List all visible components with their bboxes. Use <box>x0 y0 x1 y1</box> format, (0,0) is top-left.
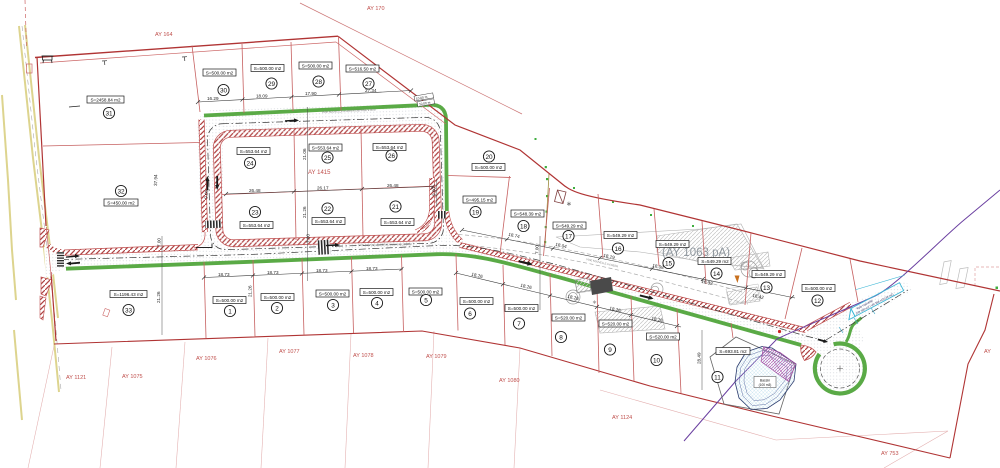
svg-text:29: 29 <box>268 81 276 88</box>
svg-text:30: 30 <box>220 87 228 94</box>
svg-text:Bassin: Bassin <box>760 379 770 383</box>
svg-text:S=553.64 m2: S=553.64 m2 <box>376 145 404 150</box>
svg-text:15: 15 <box>665 260 673 267</box>
svg-text:18.73: 18.73 <box>316 268 328 273</box>
svg-text:AY 170: AY 170 <box>367 6 385 12</box>
svg-text:S=500.00 m2: S=500.00 m2 <box>302 64 330 69</box>
svg-text:26.48: 26.48 <box>249 188 261 193</box>
svg-text:S=553.64 m2: S=553.64 m2 <box>315 219 343 224</box>
svg-text:9.00: 9.00 <box>432 187 437 196</box>
svg-text:S=500.00 m2: S=500.00 m2 <box>475 165 503 170</box>
svg-text:7.00: 7.00 <box>157 238 162 247</box>
svg-text:S=500.00 m2: S=500.00 m2 <box>254 66 282 71</box>
svg-text:10: 10 <box>653 357 661 364</box>
svg-text:18: 18 <box>520 223 528 230</box>
svg-text:18.73: 18.73 <box>267 270 279 275</box>
svg-text:S=549.29 m2: S=549.29 m2 <box>755 272 783 277</box>
svg-text:17: 17 <box>565 233 573 240</box>
svg-text:S=516.50 m2: S=516.50 m2 <box>349 67 377 72</box>
svg-text:AY 1077: AY 1077 <box>279 349 300 355</box>
svg-text:AY 1121: AY 1121 <box>66 375 86 381</box>
svg-text:S=553.64 m2: S=553.64 m2 <box>240 149 268 154</box>
svg-text:S=500.00 m2: S=500.00 m2 <box>412 290 440 295</box>
svg-text:21.26: 21.26 <box>156 291 161 303</box>
svg-text:28: 28 <box>315 79 323 86</box>
svg-text:S=495.15 m2: S=495.15 m2 <box>466 198 494 203</box>
svg-text:S=1196.43 m2: S=1196.43 m2 <box>114 292 144 297</box>
svg-text:AY 1415: AY 1415 <box>308 170 331 176</box>
svg-text:6: 6 <box>468 311 472 318</box>
svg-text:S=520.00 m2: S=520.00 m2 <box>555 316 583 321</box>
svg-text:S=553.64 m2: S=553.64 m2 <box>312 146 340 151</box>
svg-text:27: 27 <box>365 81 373 88</box>
svg-text:S=500.00 m2: S=500.00 m2 <box>463 299 491 304</box>
svg-text:9.00: 9.00 <box>204 189 210 199</box>
svg-text:S=2458.84 m2: S=2458.84 m2 <box>90 98 120 103</box>
svg-text:S=549.29 m2: S=549.29 m2 <box>556 224 584 229</box>
svg-text:33: 33 <box>125 307 133 314</box>
svg-text:18.73: 18.73 <box>366 266 378 271</box>
svg-text:S=500.00 m2: S=500.00 m2 <box>206 71 234 76</box>
svg-text:26.48: 26.48 <box>387 183 399 188</box>
svg-text:21: 21 <box>392 204 400 211</box>
svg-text:17.90: 17.90 <box>305 91 317 96</box>
svg-text:21.26: 21.26 <box>302 206 307 218</box>
svg-text:(100 m3): (100 m3) <box>759 383 772 387</box>
svg-text:S=500.00 m2: S=500.00 m2 <box>319 292 347 297</box>
svg-text:AY: AY <box>984 349 991 355</box>
svg-text:S=500.00 m2: S=500.00 m2 <box>508 306 536 311</box>
svg-text:28.49: 28.49 <box>697 352 702 364</box>
svg-text:25: 25 <box>324 155 332 162</box>
svg-text:20: 20 <box>485 154 493 161</box>
svg-text:AY 1078: AY 1078 <box>353 353 374 359</box>
svg-text:S=450.00 m2: S=450.00 m2 <box>107 201 135 206</box>
svg-text:12: 12 <box>814 298 822 305</box>
svg-text:13: 13 <box>763 285 771 292</box>
svg-text:7.00: 7.00 <box>535 245 540 254</box>
svg-text:S=548.39 m2: S=548.39 m2 <box>514 212 542 217</box>
svg-text:21.26: 21.26 <box>248 285 253 297</box>
svg-text:3: 3 <box>331 302 335 309</box>
svg-text:37.94: 37.94 <box>153 174 158 186</box>
svg-text:21.06: 21.06 <box>302 148 307 160</box>
svg-text:S=500.00 m2: S=500.00 m2 <box>264 295 292 300</box>
svg-text:AY 753: AY 753 <box>881 451 899 457</box>
svg-text:AY 164: AY 164 <box>155 32 173 38</box>
svg-text:9: 9 <box>608 347 612 354</box>
svg-text:S=553.64 m2: S=553.64 m2 <box>243 223 271 228</box>
svg-text:S=500.00 m2: S=500.00 m2 <box>363 290 391 295</box>
svg-text:1: 1 <box>228 308 232 315</box>
svg-text:22: 22 <box>324 206 332 213</box>
svg-text:AY 1124: AY 1124 <box>612 415 632 421</box>
svg-text:14: 14 <box>713 271 721 278</box>
svg-text:S=553.64 m2: S=553.64 m2 <box>384 220 412 225</box>
svg-text:2: 2 <box>275 305 279 312</box>
svg-text:16: 16 <box>614 246 622 253</box>
svg-text:S=693.81 m2: S=693.81 m2 <box>719 349 747 354</box>
svg-text:AY 1076: AY 1076 <box>196 356 217 362</box>
svg-text:AY 1079: AY 1079 <box>426 354 447 360</box>
svg-text:19: 19 <box>472 209 480 216</box>
svg-text:11: 11 <box>714 374 721 381</box>
svg-text:24: 24 <box>246 160 254 167</box>
svg-text:31: 31 <box>105 110 113 117</box>
svg-text:S=520.00 m2: S=520.00 m2 <box>602 322 630 327</box>
svg-text:4: 4 <box>375 300 379 307</box>
svg-text:18.73: 18.73 <box>218 272 230 277</box>
svg-text:∗: ∗ <box>592 300 597 306</box>
svg-text:7.00: 7.00 <box>306 234 311 243</box>
svg-text:23: 23 <box>251 209 259 216</box>
svg-text:5: 5 <box>424 297 428 304</box>
svg-text:26: 26 <box>388 153 396 160</box>
svg-text:S=500.00 m2: S=500.00 m2 <box>805 286 833 291</box>
svg-text:S=500.00 m2: S=500.00 m2 <box>216 298 244 303</box>
svg-text:AY 1075: AY 1075 <box>122 374 143 380</box>
svg-text:S=520.00 m2: S=520.00 m2 <box>649 335 677 340</box>
svg-text:7: 7 <box>517 321 521 328</box>
svg-text:S=549.29 m2: S=549.29 m2 <box>659 242 687 247</box>
svg-text:S=549.29 m2: S=549.29 m2 <box>607 233 635 238</box>
svg-text:S=549.29 m2: S=549.29 m2 <box>701 259 729 264</box>
svg-text:8: 8 <box>559 334 563 341</box>
svg-text:∗: ∗ <box>566 201 572 208</box>
svg-text:32: 32 <box>117 188 125 195</box>
svg-text:AY 1080: AY 1080 <box>499 378 520 384</box>
svg-text:16.29: 16.29 <box>207 96 219 101</box>
svg-text:26.17: 26.17 <box>317 186 329 191</box>
svg-text:18.09: 18.09 <box>256 94 268 99</box>
